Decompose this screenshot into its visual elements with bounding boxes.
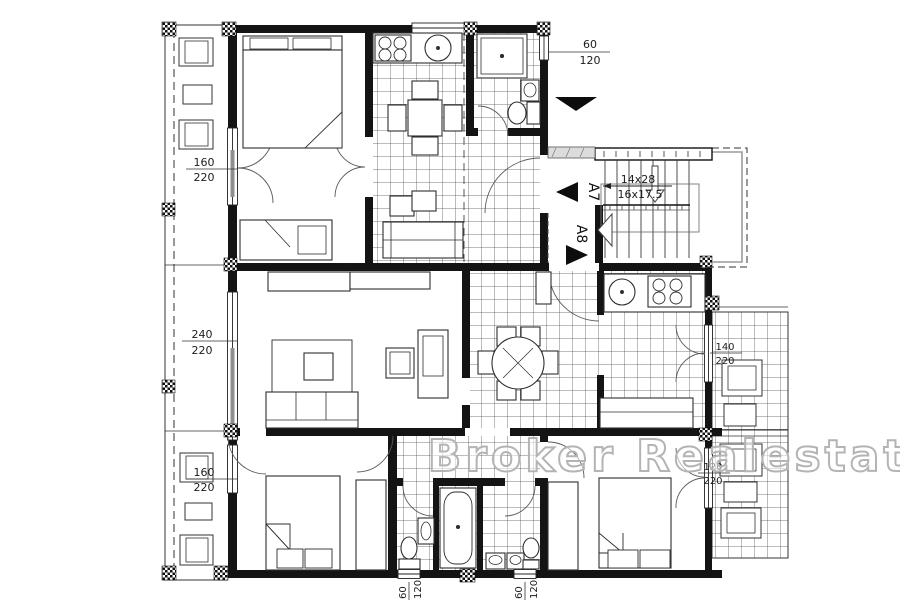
toilet-icon (401, 537, 417, 559)
stair-tread-label: 16x17.5 (618, 188, 663, 201)
terrace-table (183, 85, 212, 104)
entrance-arrow-top (555, 97, 597, 111)
bedroom-top-left (240, 36, 342, 260)
balcony-chair (721, 508, 761, 538)
toilet-icon (523, 538, 539, 558)
stair-riser-label: 14x28 (621, 173, 656, 186)
dim-kitchen-door-num: 140 (715, 342, 734, 353)
dim-kitchen-door-den: 220 (715, 356, 734, 367)
floor-plan-drawing: 14x28 16x17.5 A7 A8 (0, 0, 900, 600)
pillow (277, 549, 303, 568)
sofa (266, 392, 358, 428)
sideboard (268, 272, 350, 291)
dim-bath-window-l-num: 60 (398, 586, 409, 599)
floor-plan-page: 14x28 16x17.5 A7 A8 (0, 0, 900, 600)
pillow (608, 550, 638, 568)
dim-bath-window-l-den: 120 (413, 580, 424, 599)
dim-living-window-den: 220 (192, 344, 213, 357)
unit-label-a8: A8 (573, 225, 589, 243)
pillow (305, 549, 332, 568)
pillow (640, 550, 670, 568)
wardrobe (548, 482, 578, 570)
chair (388, 105, 406, 131)
dim-balcony-door-bl-den: 220 (194, 481, 215, 494)
toilet-icon (508, 102, 526, 124)
toilet-tank (523, 560, 539, 569)
dim-balcony-door-bl-num: 160 (194, 466, 215, 479)
toilet-tank (527, 102, 540, 124)
kitchen-island (600, 398, 693, 428)
table (408, 100, 442, 136)
dim-balcony-door-tl-den: 220 (194, 171, 215, 184)
balcony-table (724, 482, 757, 502)
living-room (266, 272, 448, 428)
dim-living-window-num: 240 (192, 328, 213, 341)
bench (390, 196, 414, 216)
window-top (412, 23, 468, 34)
staircase: 14x28 16x17.5 (595, 148, 747, 267)
terrace-table (185, 503, 212, 520)
entry-vestibule (548, 147, 595, 263)
unit-markers: A7 A8 (555, 97, 601, 265)
dim-bath-window-r-den: 120 (529, 580, 540, 599)
chair (412, 81, 438, 99)
chair (444, 105, 462, 131)
toilet-tank (399, 559, 420, 569)
chair (412, 137, 438, 155)
sideboard (350, 272, 430, 289)
dim-entry-window-num: 60 (583, 38, 597, 51)
dim-entry-window-den: 120 (580, 54, 601, 67)
terrace-chair (179, 38, 213, 66)
bench (412, 191, 436, 211)
bedroom-bottom-left (266, 476, 386, 570)
dim-balcony-door-tl-num: 160 (194, 156, 215, 169)
watermark-text: Broker Realestate (428, 431, 900, 482)
balcony-table (724, 404, 756, 426)
coffee-table (304, 353, 333, 380)
dim-bath-window-r-num: 60 (514, 586, 525, 599)
wardrobe (356, 480, 386, 570)
balcony-left (163, 25, 228, 580)
entrance-arrow-a8 (566, 245, 588, 265)
bedroom-bottom-right (548, 478, 671, 570)
entrance-arrow-a7 (556, 182, 578, 202)
terrace-chair (180, 535, 213, 565)
cabinet (536, 272, 551, 304)
terrace-chair (179, 120, 213, 149)
unit-label-a7: A7 (585, 183, 601, 201)
